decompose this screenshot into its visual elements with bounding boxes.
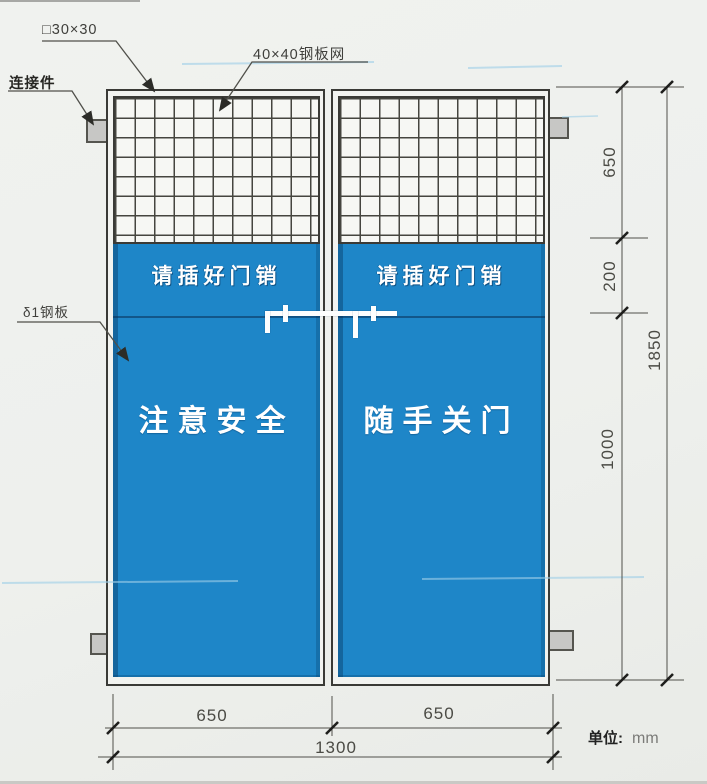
dim-h-650-right: 650 [423,704,454,724]
pin-notice-left: 请插好门销 [113,260,320,290]
door-latch-tick-1 [283,305,288,322]
unit-label: 单位: [588,730,623,747]
panel-seam-right [338,316,545,318]
callout-connector: 连接件 [9,72,56,93]
steel-mesh-left [113,96,320,244]
door-panel-left: 请插好门销 注意安全 [106,89,325,686]
callout-tube-size: □30×30 [42,22,97,38]
callout-mesh-size: 40×40钢板网 [253,43,345,64]
leader-connector [8,91,93,124]
door-latch-left-leg [265,311,270,333]
dim-v-1000: 1000 [598,428,618,470]
dim-h-1300: 1300 [315,738,357,758]
pin-notice-right: 请插好门销 [338,260,545,290]
dim-v-650: 650 [600,146,620,177]
door-panel-right: 请插好门销 随手关门 [331,89,550,686]
dim-v-200: 200 [600,260,620,291]
unit-value: mm [632,730,659,747]
steel-mesh-right [338,96,545,244]
dim-v-1850: 1850 [645,329,665,371]
door-latch-tick-2 [371,306,376,321]
connector-tab-bottom-right [548,630,574,651]
unit-note: 单位:mm [588,727,659,748]
callout-steel-plate: δ1钢板 [23,301,69,321]
steel-plate-right: 请插好门销 随手关门 [338,244,545,677]
panel-seam-left [113,316,320,318]
slogan-left: 注意安全 [113,396,320,440]
steel-plate-left: 请插好门销 注意安全 [113,244,320,677]
leader-tube [42,41,154,91]
scan-edge-top [0,0,140,2]
technical-drawing-safety-door: 请插好门销 注意安全 请插好门销 随手关门 □30×30 40×40钢板网 连接… [0,0,707,784]
door-latch-drop-leg [353,311,358,338]
dim-h-650-left: 650 [196,706,227,726]
slogan-right: 随手关门 [338,396,545,440]
